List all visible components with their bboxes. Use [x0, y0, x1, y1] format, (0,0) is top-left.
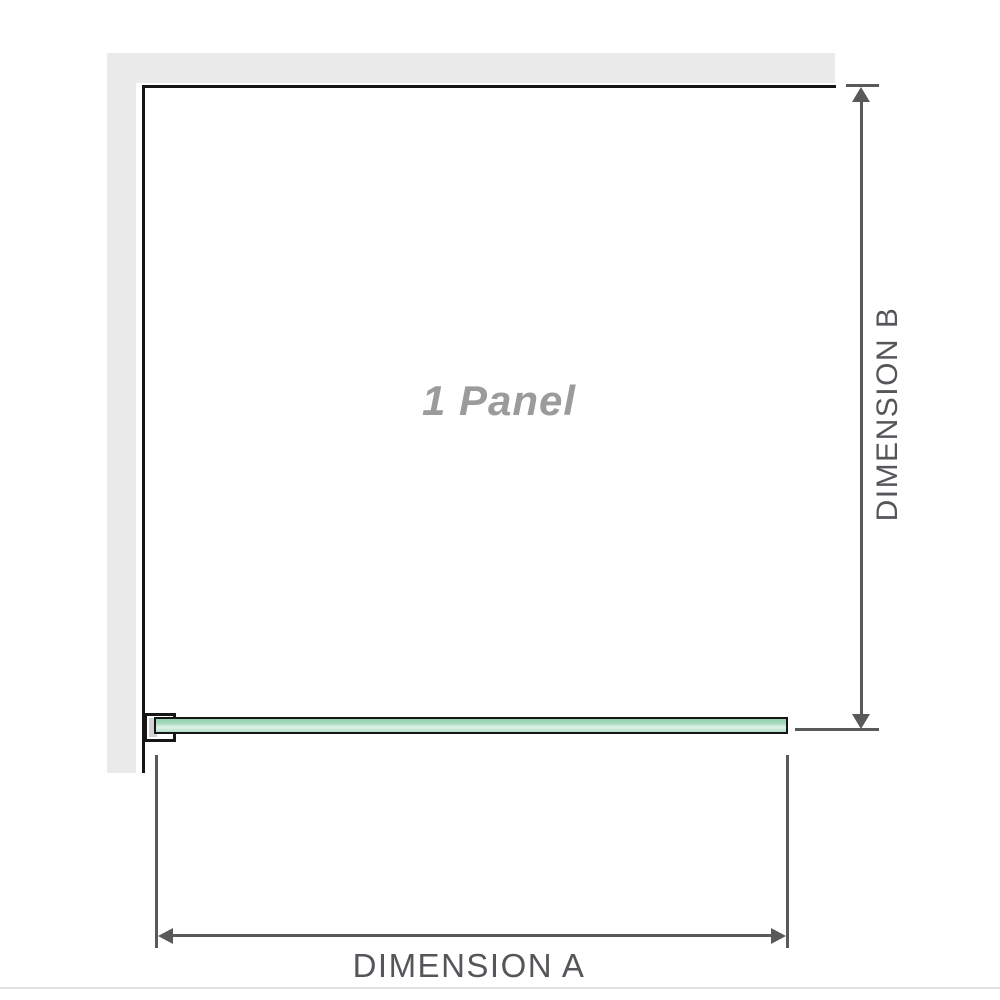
dimension-a-arrow-right-icon: [771, 928, 786, 944]
panel-count-label: 1 Panel: [422, 377, 576, 425]
dimension-a-line: [162, 934, 782, 937]
dimension-a-extension-right: [786, 755, 789, 948]
panel-outline-left: [142, 85, 145, 773]
dimension-b-label: DIMENSION B: [871, 307, 905, 522]
dimension-b-arrow-up-icon: [852, 87, 870, 102]
dimension-a-arrow-left-icon: [158, 928, 173, 944]
dimension-b-arrow-down-icon: [852, 714, 870, 729]
panel-outline-top: [142, 85, 836, 88]
dimension-a-extension-left: [155, 755, 158, 948]
wall-left: [107, 53, 136, 773]
dimension-a-label: DIMENSION A: [353, 947, 586, 985]
dimension-b-line: [860, 100, 863, 715]
glass-panel: [154, 717, 788, 734]
wall-top: [107, 53, 835, 83]
shower-panel-dimension-diagram: 1 Panel DIMENSION B DIMENSION A: [0, 0, 1000, 1000]
footer-rule: [0, 987, 1000, 989]
